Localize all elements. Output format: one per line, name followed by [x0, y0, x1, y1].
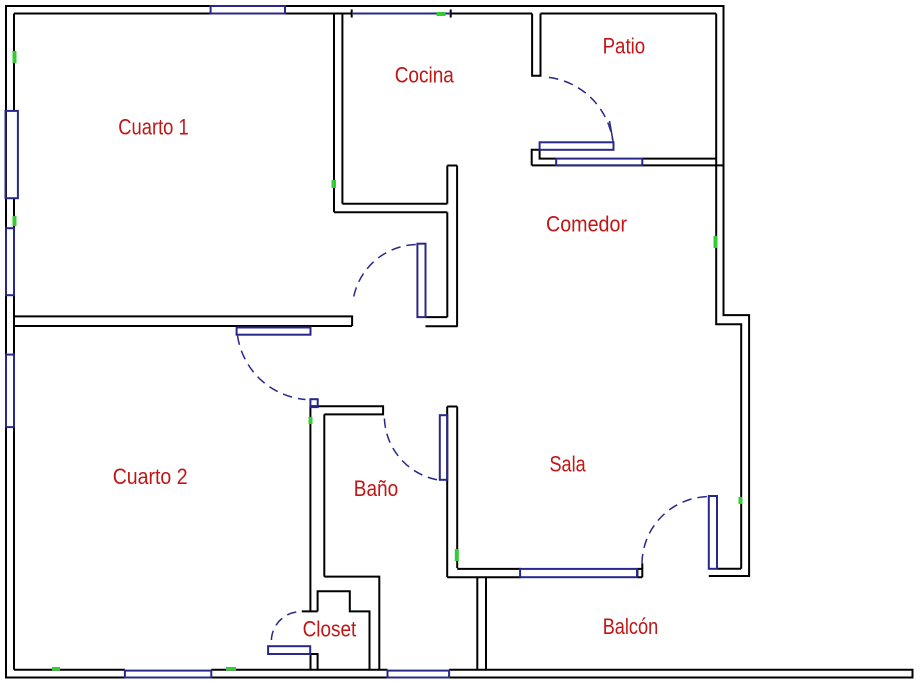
svg-text:Baño: Baño	[354, 476, 398, 501]
svg-text:Patio: Patio	[603, 34, 646, 59]
svg-text:Cuarto 1: Cuarto 1	[118, 114, 188, 139]
svg-text:Cuarto 2: Cuarto 2	[113, 464, 188, 489]
svg-text:Balcón: Balcón	[603, 614, 659, 639]
svg-text:Closet: Closet	[303, 616, 357, 641]
svg-text:Sala: Sala	[550, 452, 587, 477]
svg-text:Comedor: Comedor	[546, 211, 627, 236]
svg-text:Cocina: Cocina	[395, 63, 455, 88]
